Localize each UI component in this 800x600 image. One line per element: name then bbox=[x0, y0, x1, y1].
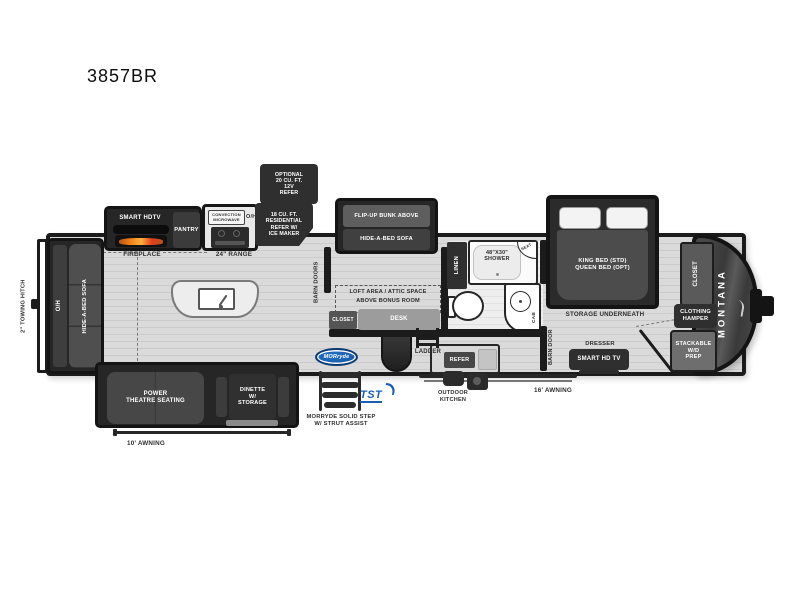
step-label-line1: MORRYDE SOLID STEP bbox=[306, 414, 375, 421]
dinette-label-line1: DINETTE bbox=[240, 387, 265, 394]
optional-refer-callout: OPTIONAL 20 CU. FT. 12V REFER bbox=[260, 164, 318, 204]
morryde-step-label: MORRYDE SOLID STEP W/ STRUT ASSIST bbox=[297, 414, 385, 428]
step-tread bbox=[319, 372, 361, 378]
dinette-table: DINETTE W/ STORAGE bbox=[229, 374, 276, 420]
front-closet-label: CLOSET bbox=[693, 261, 700, 287]
rear-hide-a-bed-sofa: HIDE-A-BED SOFA bbox=[69, 244, 101, 368]
montana-brand-label: MONTANA bbox=[716, 250, 728, 358]
towing-hitch-label: 2" TOWING HITCH bbox=[19, 268, 29, 344]
step-tread bbox=[322, 392, 358, 398]
bedroom-barn-door-wall-lower bbox=[540, 326, 547, 371]
fireplace-label: FIREPLACE bbox=[118, 251, 166, 259]
king-pin bbox=[760, 296, 774, 316]
shower: 48"X30" SHOWER SEAT bbox=[468, 240, 538, 285]
tst-logo-text: TST bbox=[360, 389, 382, 403]
linen-closet: LINEN bbox=[447, 242, 467, 289]
storage-underneath-label: STORAGE UNDERNEATH bbox=[558, 311, 652, 318]
loft-label-line1: LOFT AREA / ATTIC SPACE bbox=[336, 289, 440, 296]
tv-stand bbox=[579, 370, 619, 374]
awning-16-label: 16' AWNING bbox=[528, 387, 578, 395]
optional-refer-line4: REFER bbox=[280, 190, 298, 196]
stackable-wd-prep: STACKABLE W/D PREP bbox=[670, 330, 717, 372]
rear-overhead-cabinet: O/H bbox=[53, 245, 67, 367]
outdoor-kitchen-griddle bbox=[443, 371, 464, 386]
dinette-base bbox=[226, 420, 278, 426]
outdoor-refer-label: REFER bbox=[450, 357, 470, 364]
bed-mattress: KING BED (STD) QUEEN BED (OPT) bbox=[557, 230, 648, 300]
bunk-hide-a-bed-sofa: HIDE-A-BED SOFA bbox=[343, 229, 430, 250]
barn-doors-label: BARN DOORS bbox=[312, 256, 322, 308]
bath-vanity: CAB bbox=[504, 283, 541, 333]
awning-10-rail bbox=[116, 431, 288, 434]
outdoor-kitchen-label: OUTDOOR KITCHEN bbox=[428, 390, 478, 403]
ladder-rung bbox=[416, 331, 439, 334]
bed-label-line2: QUEEN BED (OPT) bbox=[575, 265, 630, 272]
flip-up-bunk-label: FLIP-UP BUNK ABOVE bbox=[354, 213, 418, 220]
awning-10-cap-right bbox=[287, 429, 291, 436]
ladder-icon bbox=[416, 328, 439, 348]
outdoor-kitchen-line1: OUTDOOR bbox=[438, 390, 468, 397]
outdoor-refer: REFER bbox=[444, 352, 475, 368]
dinette-bench-left bbox=[216, 377, 227, 417]
front-closet: CLOSET bbox=[680, 242, 714, 306]
bedroom-tv-label: SMART HD TV bbox=[577, 356, 620, 363]
residential-refer-line4: ICE MAKER bbox=[269, 231, 300, 237]
power-theatre-seating: POWER THEATRE SEATING bbox=[107, 372, 204, 424]
microwave-oh-label: O/H bbox=[246, 214, 256, 221]
living-bottom-slide: POWER THEATRE SEATING DINETTE W/ STORAGE bbox=[95, 362, 299, 428]
bedroom-tv: SMART HD TV bbox=[569, 349, 629, 370]
shower-label-block: 48"X30" SHOWER bbox=[472, 250, 522, 263]
range-cooktop bbox=[211, 227, 249, 248]
outdoor-kitchen-counter bbox=[478, 349, 497, 370]
dinette-bench-right bbox=[278, 377, 289, 417]
pantry-label: PANTRY bbox=[174, 227, 198, 234]
island-sink bbox=[198, 288, 235, 310]
toilet bbox=[452, 291, 484, 321]
bed-pillow-left bbox=[559, 207, 601, 229]
shower-label-line2: SHOWER bbox=[484, 256, 509, 262]
morryde-logo: MORryde bbox=[315, 348, 358, 366]
slide-footprint-dash-vertical bbox=[137, 252, 138, 366]
range-control-panel bbox=[215, 241, 245, 245]
flip-up-bunk: FLIP-UP BUNK ABOVE bbox=[343, 205, 430, 227]
theatre-label-line1: POWER bbox=[144, 391, 168, 398]
dinette-label-line3: STORAGE bbox=[238, 400, 267, 407]
bonus-closet-label: CLOSET bbox=[332, 317, 353, 323]
wd-label-line3: PREP bbox=[685, 354, 701, 361]
bonus-closet: CLOSET bbox=[329, 311, 357, 329]
dresser-label: DRESSER bbox=[578, 341, 622, 348]
desk-label: DESK bbox=[390, 316, 407, 323]
theatre-label-line2: THEATRE SEATING bbox=[126, 398, 185, 405]
microwave-label-line2: MICROWAVE bbox=[213, 218, 240, 223]
range-burner bbox=[233, 230, 240, 237]
ladder-rung bbox=[416, 337, 439, 340]
entertainment-slide: SMART HDTV PANTRY bbox=[104, 206, 202, 251]
ladder-rung bbox=[416, 343, 439, 346]
hamper-label-line2: HAMPER bbox=[683, 316, 708, 323]
rear-overhead-label: O/H bbox=[56, 300, 63, 311]
speaker-cone bbox=[473, 377, 481, 385]
tv-screen bbox=[113, 225, 169, 234]
bunk-sofa-label: HIDE-A-BED SOFA bbox=[360, 236, 413, 243]
awning-10-cap-left bbox=[113, 429, 117, 436]
wd-label-line2: W/D bbox=[688, 348, 699, 355]
range-label: 24" RANGE bbox=[210, 251, 258, 259]
step-tread bbox=[321, 382, 359, 388]
fireplace-flames bbox=[119, 238, 163, 245]
fireplace-unit bbox=[115, 235, 167, 247]
outdoor-kitchen-line2: KITCHEN bbox=[440, 397, 466, 404]
shower-seat-label: SEAT bbox=[521, 243, 533, 252]
tst-logo-swoosh bbox=[382, 383, 398, 395]
bunk-slide: FLIP-UP BUNK ABOVE HIDE-A-BED SOFA bbox=[335, 198, 438, 254]
rear-sofa-label: HIDE-A-BED SOFA bbox=[82, 279, 89, 334]
barn-doors-wall bbox=[324, 247, 331, 293]
loft-label-line2: ABOVE BONUS ROOM bbox=[336, 298, 440, 305]
kitchen-island bbox=[171, 280, 259, 318]
shower-drain bbox=[496, 273, 499, 276]
step-label-line2: W/ STRUT ASSIST bbox=[314, 421, 367, 428]
slide-footprint-dash-mid bbox=[163, 252, 207, 253]
linen-label: LINEN bbox=[454, 256, 461, 274]
morryde-logo-text: MORryde bbox=[324, 354, 350, 360]
bath-sink-drain bbox=[519, 300, 522, 303]
rear-sofa-slide: O/H HIDE-A-BED SOFA bbox=[47, 238, 104, 374]
floorplan-3857br: 3857BR 2" TOWING HITCH O/H HIDE-A-BED SO… bbox=[0, 0, 800, 600]
hamper-label-line1: CLOTHING bbox=[680, 309, 711, 316]
vanity-cab-label: CAB bbox=[531, 305, 539, 331]
king-bed-slide: KING BED (STD) QUEEN BED (OPT) bbox=[546, 195, 659, 309]
desk: DESK bbox=[358, 309, 440, 330]
outdoor-kitchen-speaker bbox=[467, 373, 488, 390]
pantry-cabinet: PANTRY bbox=[173, 212, 200, 248]
tst-logo: TST bbox=[360, 385, 382, 403]
bed-pillow-right bbox=[606, 207, 648, 229]
clothing-hamper: CLOTHING HAMPER bbox=[674, 304, 717, 328]
bathroom-bottom-wall bbox=[446, 329, 545, 337]
ladder-label: LADDER bbox=[408, 349, 448, 356]
awning-10-label: 10' AWNING bbox=[118, 440, 174, 448]
dinette-label-line2: W/ bbox=[249, 394, 256, 401]
page-title: 3857BR bbox=[87, 66, 158, 87]
wd-label-line1: STACKABLE bbox=[676, 341, 712, 348]
smart-hdtv-label: SMART HDTV bbox=[109, 215, 171, 222]
convection-microwave: CONVECTION MICROWAVE bbox=[208, 210, 245, 225]
entry-steps bbox=[317, 371, 363, 414]
bed-label-line1: KING BED (STD) bbox=[578, 258, 626, 265]
montana-script-mark bbox=[733, 299, 746, 316]
kitchen-appliance-block: CONVECTION MICROWAVE O/H bbox=[202, 204, 258, 251]
island-faucet-base bbox=[219, 305, 223, 309]
range-burner bbox=[218, 230, 225, 237]
rear-hitch-knob bbox=[31, 299, 38, 309]
step-tread bbox=[324, 402, 356, 408]
bedroom-barn-door-label: BARN DOOR bbox=[547, 324, 556, 371]
